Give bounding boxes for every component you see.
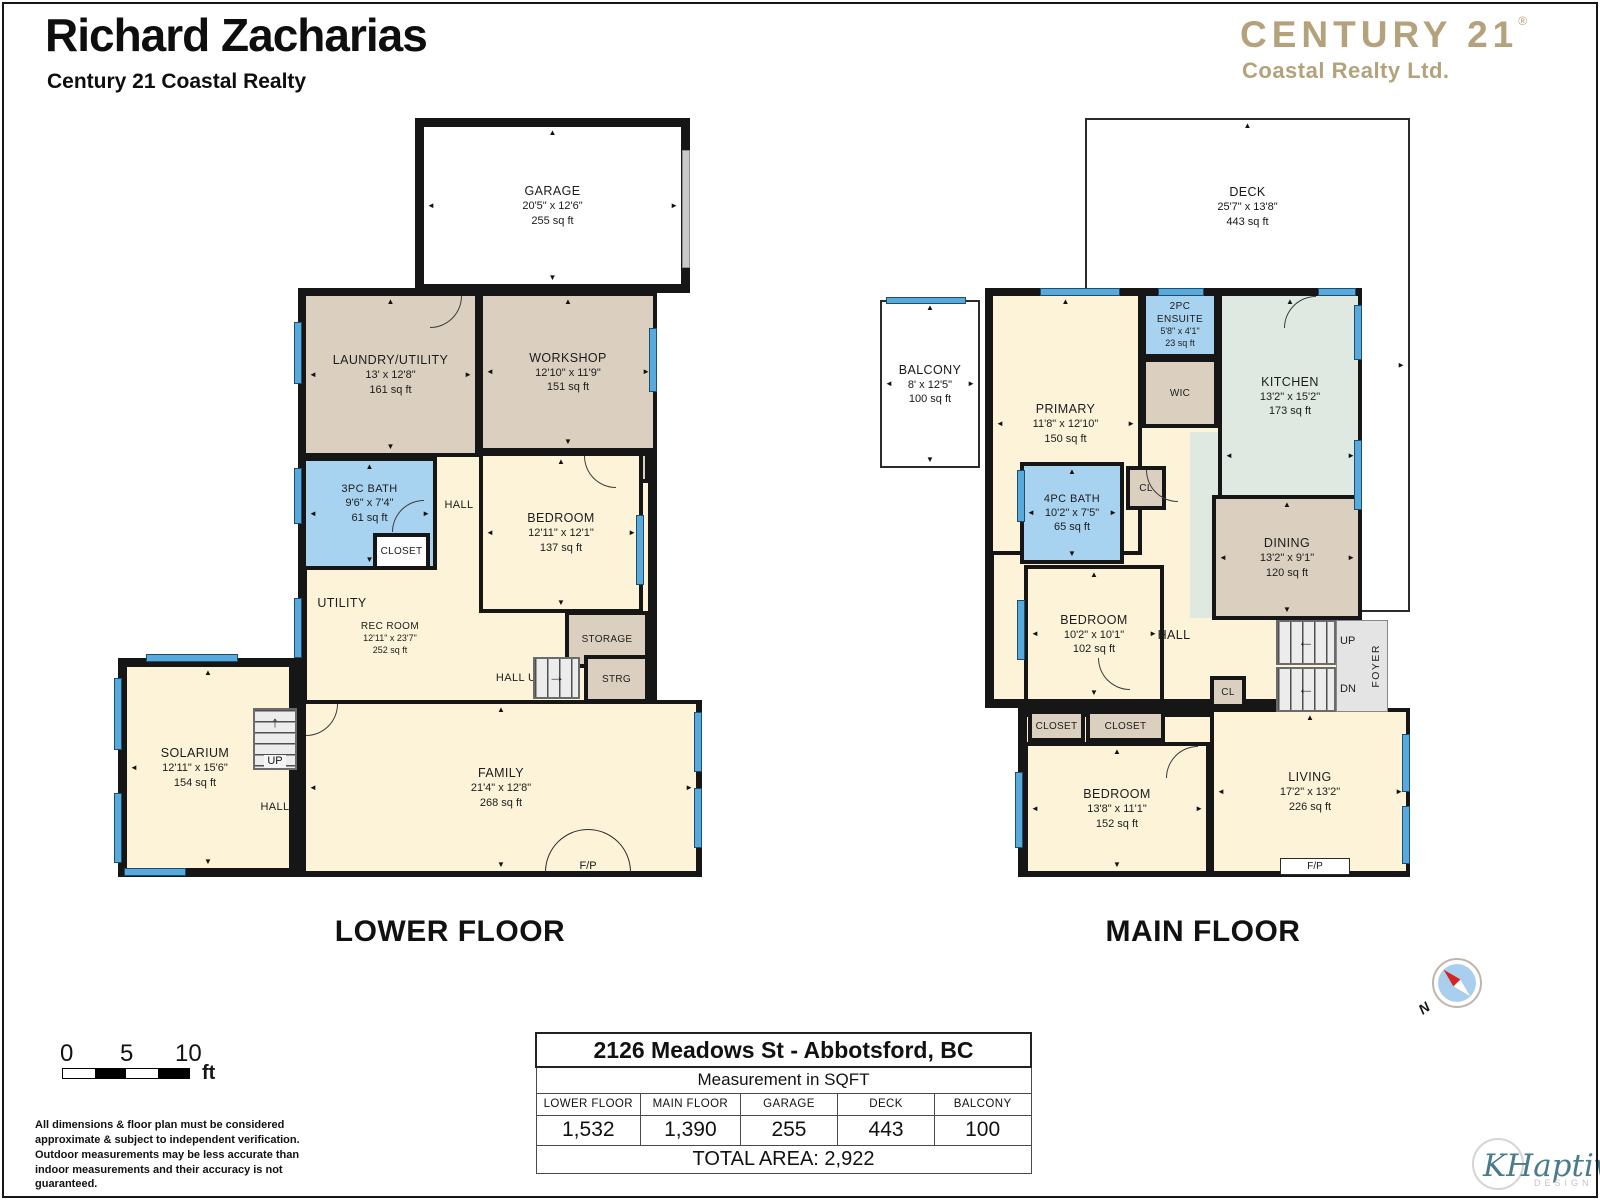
- total-area: TOTAL AREA: 2,922: [536, 1145, 1031, 1173]
- window: [1318, 288, 1356, 296]
- window: [1354, 440, 1362, 510]
- room-utility-label: UTILITY: [303, 592, 381, 614]
- fireplace-label: F/P: [579, 860, 596, 872]
- room-area: 268 sq ft: [480, 796, 522, 810]
- room-area: 226 sq ft: [1289, 800, 1331, 814]
- window: [636, 515, 644, 585]
- room-wic: WIC: [1142, 358, 1218, 428]
- brand-logo: CENTURY 21® Coastal Realty Ltd.: [1240, 14, 1560, 84]
- room-area: 154 sq ft: [174, 776, 216, 790]
- value-lower-floor: 1,532: [536, 1115, 641, 1145]
- room-closet-a: CLOSET: [1028, 710, 1085, 742]
- room-name: HALL: [260, 800, 289, 814]
- window: [694, 788, 702, 848]
- room-area: 252 sq ft: [373, 645, 408, 657]
- room-name: CLOSET: [1036, 720, 1078, 733]
- brand-logo-main: CENTURY 21®: [1240, 14, 1560, 56]
- room-name: GARAGE: [525, 183, 581, 199]
- room-name: LIVING: [1288, 769, 1331, 785]
- room-name: 2PC ENSUITE: [1146, 300, 1214, 326]
- deck-label: DECK 25'7" x 13'8" 443 sq ft: [1087, 184, 1408, 229]
- room-name: WORKSHOP: [529, 350, 607, 366]
- compass-north-label: N: [1415, 999, 1432, 1018]
- room-area: 102 sq ft: [1073, 642, 1115, 656]
- room-dims: 25'7" x 13'8": [1087, 200, 1408, 214]
- fireplace-label: F/P: [1307, 861, 1323, 872]
- stairs-down-label: DN: [1340, 682, 1356, 696]
- room-balcony: BALCONY 8' x 12'5" 100 sq ft: [880, 300, 980, 468]
- room-bedroom-mid: BEDROOM 10'2" x 10'1" 102 sq ft: [1024, 565, 1164, 703]
- scale-tick-10: 10: [175, 1040, 202, 1068]
- stairs-main-up: [1276, 620, 1336, 665]
- room-dims: 13'2" x 9'1": [1260, 551, 1314, 565]
- room-hall-solarium: HALL: [253, 777, 297, 837]
- room-area: 150 sq ft: [1044, 432, 1086, 446]
- room-dims: 12'11" x 12'1": [528, 526, 594, 540]
- table-value-row: 1,532 1,390 255 443 100: [536, 1115, 1031, 1145]
- room-area: 120 sq ft: [1266, 566, 1308, 580]
- table-row: Measurement in SQFT: [536, 1067, 1031, 1093]
- stairs-foyer-block: FOYER UP DN: [1276, 620, 1410, 714]
- room-area: 100 sq ft: [909, 392, 951, 406]
- room-name: STORAGE: [582, 633, 633, 646]
- room-name: BEDROOM: [527, 510, 594, 526]
- room-name: WIC: [1170, 387, 1190, 400]
- stairs-up-label: UP: [1340, 634, 1355, 648]
- room-name: 4PC BATH: [1044, 492, 1100, 506]
- lower-floor-label: LOWER FLOOR: [300, 915, 600, 949]
- scale-unit: ft: [202, 1062, 215, 1085]
- value-garage: 255: [740, 1115, 838, 1145]
- window: [1040, 288, 1120, 296]
- window: [114, 678, 122, 750]
- col-header-balcony: BALCONY: [934, 1093, 1031, 1115]
- window: [294, 598, 302, 658]
- disclaimer-text: All dimensions & floor plan must be cons…: [35, 1118, 317, 1192]
- window: [694, 712, 702, 772]
- room-dims: 5'8" x 4'1": [1160, 326, 1199, 338]
- room-area: 152 sq ft: [1096, 817, 1138, 831]
- room-area: 443 sq ft: [1087, 215, 1408, 229]
- room-closet-b: CLOSET: [1086, 710, 1165, 742]
- room-dining: DINING 13'2" x 9'1" 120 sq ft: [1212, 495, 1362, 620]
- window: [1402, 734, 1410, 792]
- room-living: LIVING 17'2" x 13'2" 226 sq ft: [1210, 708, 1410, 875]
- room-name: CL: [1221, 686, 1234, 699]
- room-dims: 13'2" x 15'2": [1260, 390, 1320, 404]
- room-hall-lower: HALL: [437, 492, 481, 518]
- room-cl-lower: CL: [1210, 676, 1246, 708]
- room-name: PRIMARY: [1036, 401, 1096, 417]
- stairs-main-down: [1276, 667, 1336, 712]
- table-header-row: LOWER FLOOR MAIN FLOOR GARAGE DECK BALCO…: [536, 1093, 1031, 1115]
- room-dims: 13' x 12'8": [365, 368, 415, 382]
- main-floor-label: MAIN FLOOR: [1050, 915, 1356, 949]
- foyer-label: FOYER: [1370, 644, 1384, 688]
- room-dims: 12'11" x 15'6": [162, 761, 228, 775]
- value-deck: 443: [838, 1115, 934, 1145]
- room-name: DECK: [1087, 184, 1408, 200]
- room-closet-bath: CLOSET: [373, 533, 430, 570]
- window: [1354, 305, 1362, 360]
- room-name: SOLARIUM: [161, 745, 230, 761]
- room-area: 23 sq ft: [1165, 338, 1195, 350]
- room-name: HALL: [444, 498, 473, 512]
- window: [649, 328, 657, 392]
- room-dims: 17'2" x 13'2": [1280, 785, 1340, 799]
- agent-name: Richard Zacharias: [45, 8, 427, 62]
- room-area: 61 sq ft: [351, 511, 387, 525]
- room-area: 65 sq ft: [1054, 520, 1090, 534]
- room-area: 173 sq ft: [1269, 404, 1311, 418]
- room-family: FAMILY 21'4" x 12'8" 268 sq ft: [302, 700, 700, 875]
- room-area: 255 sq ft: [531, 214, 573, 228]
- measurement-table: 2126 Meadows St - Abbotsford, BC Measure…: [535, 1032, 1032, 1174]
- address: 2126 Meadows St - Abbotsford, BC: [536, 1033, 1031, 1067]
- stairs-up-label: UP: [264, 755, 285, 768]
- room-name: CLOSET: [381, 545, 423, 558]
- room-dims: 10'2" x 10'1": [1064, 628, 1124, 642]
- window: [294, 322, 302, 384]
- floor-plan-page: Richard Zacharias Century 21 Coastal Rea…: [0, 0, 1600, 1200]
- col-header-lower-floor: LOWER FLOOR: [536, 1093, 641, 1115]
- room-area: 161 sq ft: [369, 383, 411, 397]
- room-dims: 8' x 12'5": [908, 378, 952, 392]
- room-strg: STRG: [584, 655, 649, 703]
- room-name: LAUNDRY/UTILITY: [333, 352, 449, 368]
- room-2pc-ensuite: 2PC ENSUITE 5'8" x 4'1" 23 sq ft: [1142, 292, 1218, 358]
- table-total-row: TOTAL AREA: 2,922: [536, 1145, 1031, 1173]
- room-workshop: WORKSHOP 12'10" x 11'9" 151 sq ft: [479, 292, 657, 452]
- value-balcony: 100: [934, 1115, 1031, 1145]
- col-header-main-floor: MAIN FLOOR: [641, 1093, 741, 1115]
- brand-name: CENTURY 21: [1240, 14, 1518, 55]
- window: [1017, 470, 1025, 522]
- scale-tick-0: 0: [60, 1040, 73, 1068]
- room-name: BALCONY: [899, 362, 962, 378]
- watermark-sub: DESIGN: [1534, 1178, 1593, 1188]
- room-rec-room-label: REC ROOM 12'11" x 23'7" 252 sq ft: [328, 614, 452, 662]
- window: [1402, 806, 1410, 864]
- stairs-lower-up: [533, 657, 580, 699]
- room-dims: 9'6" x 7'4": [345, 496, 393, 510]
- value-main-floor: 1,390: [641, 1115, 741, 1145]
- room-area: 137 sq ft: [540, 541, 582, 555]
- room-dims: 10'2" x 7'5": [1045, 506, 1099, 520]
- room-name: BEDROOM: [1060, 612, 1127, 628]
- window: [1015, 772, 1023, 848]
- window: [1158, 288, 1204, 296]
- window: [294, 468, 302, 524]
- brand-subtitle: Coastal Realty Ltd.: [1240, 58, 1560, 84]
- table-subtitle: Measurement in SQFT: [536, 1067, 1031, 1093]
- col-header-deck: DECK: [838, 1093, 934, 1115]
- window: [114, 793, 122, 863]
- room-area: 151 sq ft: [547, 380, 589, 394]
- compass-icon: [1432, 958, 1482, 1008]
- room-name: KITCHEN: [1261, 374, 1319, 390]
- room-garage: GARAGE 20'5" x 12'6" 255 sq ft: [415, 118, 690, 293]
- room-name: 3PC BATH: [341, 482, 397, 496]
- fireplace-main: F/P: [1280, 858, 1350, 875]
- col-header-garage: GARAGE: [740, 1093, 838, 1115]
- room-name: DINING: [1264, 535, 1310, 551]
- room-dims: 13'8" x 11'1": [1087, 802, 1147, 816]
- window: [146, 654, 238, 662]
- room-name: REC ROOM: [361, 620, 419, 633]
- window: [1017, 600, 1025, 660]
- room-dims: 20'5" x 12'6": [522, 199, 582, 213]
- table-row: 2126 Meadows St - Abbotsford, BC: [536, 1033, 1031, 1067]
- scale-bar: [62, 1068, 190, 1079]
- agency-name: Century 21 Coastal Realty: [47, 70, 306, 94]
- room-4pc-bath: 4PC BATH 10'2" x 7'5" 65 sq ft: [1020, 462, 1124, 564]
- room-name: UTILITY: [317, 595, 366, 611]
- room-name: BEDROOM: [1083, 786, 1150, 802]
- stairs-solarium-up: UP: [253, 708, 297, 770]
- room-dims: 11'8" x 12'10": [1033, 417, 1099, 431]
- room-dims: 12'11" x 23'7": [363, 633, 417, 645]
- room-bedroom-lower: BEDROOM 12'11" x 12'1" 137 sq ft: [479, 452, 643, 613]
- room-name: CLOSET: [1105, 720, 1147, 733]
- brand-registered-mark: ®: [1518, 14, 1527, 28]
- window: [886, 297, 966, 304]
- garage-door: [682, 150, 690, 268]
- room-name: STRG: [602, 673, 631, 686]
- window: [124, 868, 186, 876]
- room-dims: 21'4" x 12'8": [471, 781, 531, 795]
- scale-tick-5: 5: [120, 1040, 133, 1068]
- room-name: FAMILY: [478, 765, 524, 781]
- room-name: HALL: [1158, 627, 1191, 643]
- room-hall-main: HALL: [1146, 622, 1202, 648]
- room-dims: 12'10" x 11'9": [535, 366, 601, 380]
